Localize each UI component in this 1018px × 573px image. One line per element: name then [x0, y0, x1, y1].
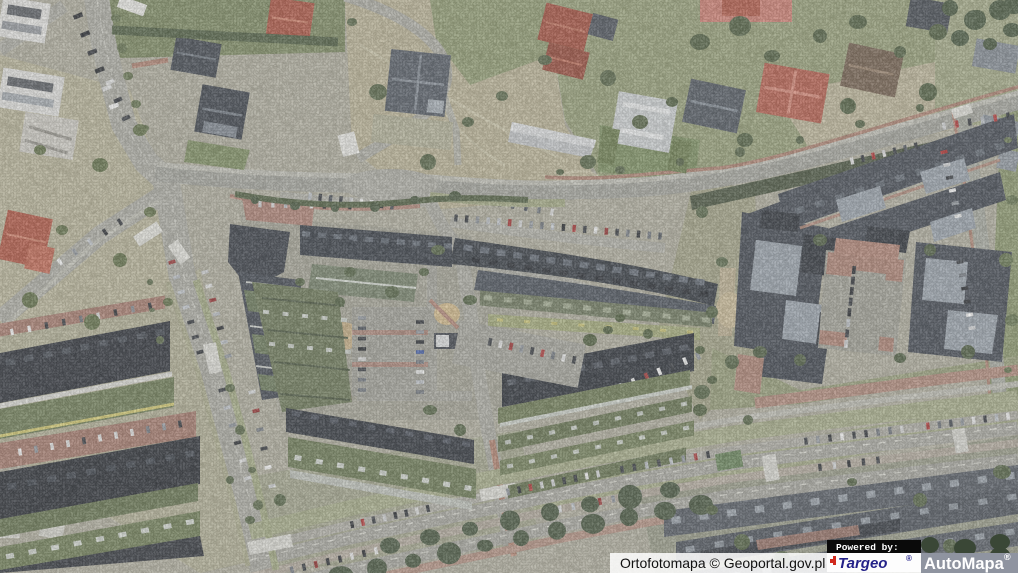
svg-text:®: ®: [906, 554, 912, 563]
svg-text:AutoMapa: AutoMapa: [924, 555, 1005, 573]
svg-text:®: ®: [1004, 552, 1011, 562]
svg-text:Ortofotomapa © Geoportal.gov.p: Ortofotomapa © Geoportal.gov.pl: [620, 555, 825, 571]
svg-text:Powered by:: Powered by:: [836, 542, 899, 553]
svg-text:Targeo: Targeo: [838, 555, 887, 572]
